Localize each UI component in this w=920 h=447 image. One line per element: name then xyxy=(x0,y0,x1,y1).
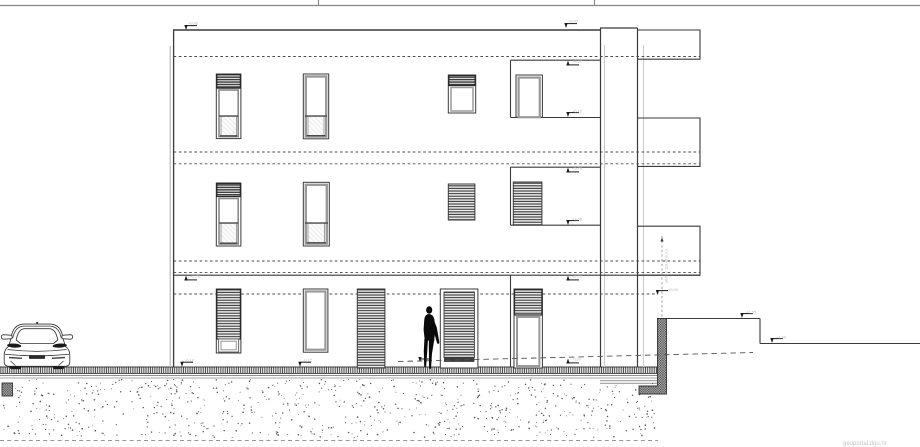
svg-text:+3,06: +3,06 xyxy=(572,217,583,222)
svg-text:+6,12: +6,12 xyxy=(572,109,583,114)
svg-text:+8,82: +8,82 xyxy=(572,59,583,64)
svg-text:+9,42: +9,42 xyxy=(568,19,579,24)
svg-text:-0,07: -0,07 xyxy=(572,357,582,362)
svg-text:+1,55: +1,55 xyxy=(746,310,757,315)
svg-text:geoportal.dgu.hr: geoportal.dgu.hr xyxy=(843,441,887,447)
svg-text:±0,00 = 123,45 m.n.v.: ±0,00 = 123,45 m.n.v. xyxy=(665,248,669,283)
svg-text:±0,00: ±0,00 xyxy=(668,287,679,292)
svg-text:-0,12: -0,12 xyxy=(185,358,195,363)
svg-text:-0,12: -0,12 xyxy=(303,358,313,363)
svg-text:+1,30: +1,30 xyxy=(776,335,787,340)
svg-text:+2,70: +2,70 xyxy=(190,274,201,279)
svg-text:+5,76: +5,76 xyxy=(572,166,583,171)
svg-text:+2,70: +2,70 xyxy=(572,274,583,279)
svg-text:+9,42: +9,42 xyxy=(188,21,199,26)
